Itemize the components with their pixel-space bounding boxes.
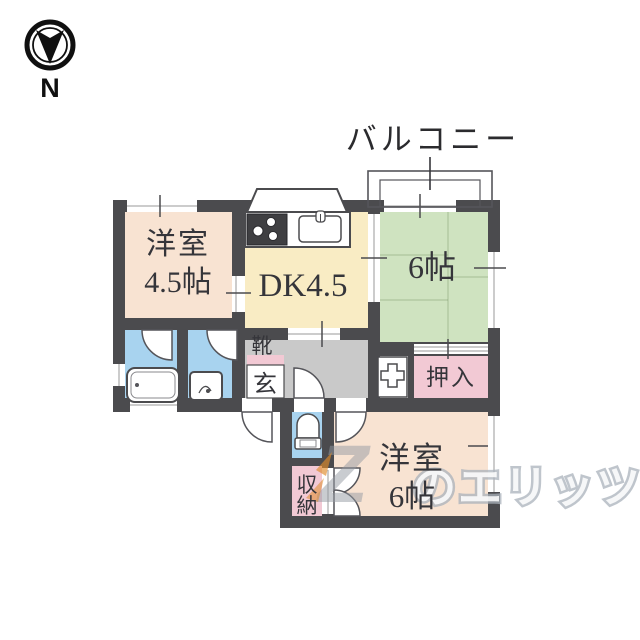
kitchen-counter: [245, 211, 350, 247]
kitchen-sink-icon: [299, 211, 341, 242]
floorplan-canvas: Z のエリッツ 洋室 4.5帖 DK4.5 6帖 洋室 6帖 押入 収 納 靴 …: [0, 0, 640, 640]
gas-stove-icon: [247, 214, 287, 245]
label-genkan-shoe: 靴: [252, 334, 273, 358]
entrance-opening: [242, 398, 272, 412]
label-oshiire: 押入: [426, 365, 476, 390]
label-balcony: バルコニー: [346, 122, 520, 157]
label-genkan-entrance: 玄: [253, 371, 277, 398]
label-western45-size: 4.5帖: [144, 266, 212, 299]
label-western6-name: 洋室: [379, 441, 445, 476]
label-western6-size: 6帖: [389, 479, 436, 514]
western45-dk-opening: [232, 276, 245, 312]
oshiire-fusuma-track: [414, 344, 488, 354]
washbasin-icon: [190, 372, 222, 400]
label-dk: DK4.5: [259, 268, 348, 304]
label-western45-name: 洋室: [146, 228, 210, 261]
washing-machine-pan-icon: [378, 357, 407, 397]
bathtub-icon: [127, 368, 179, 402]
watermark-text: のエリッツ: [412, 463, 640, 512]
label-tatami6: 6帖: [408, 249, 456, 285]
floorplan-drawing: Z のエリッツ 洋室 4.5帖 DK4.5 6帖 洋室 6帖 押入 収 納 靴 …: [0, 0, 640, 640]
label-storage-char2: 納: [297, 494, 318, 518]
balcony-outline: [368, 157, 492, 207]
entrance-door-arc: [242, 412, 272, 442]
western6-door-opening: [336, 398, 366, 412]
toilet-door-opening: [294, 398, 324, 412]
compass-north-label: N: [40, 73, 60, 103]
kitchen-bay-bump: [247, 189, 347, 212]
compass-north-icon: N: [27, 22, 73, 103]
